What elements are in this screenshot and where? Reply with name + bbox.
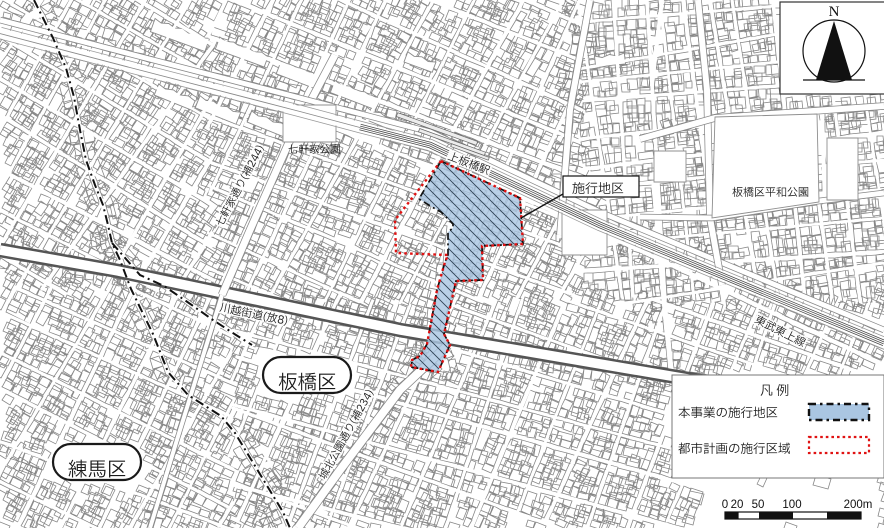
svg-text:N: N	[829, 4, 840, 20]
svg-text:100: 100	[782, 499, 801, 511]
svg-text:0: 0	[722, 499, 728, 511]
svg-text:20: 20	[731, 499, 744, 511]
svg-text:200m: 200m	[844, 499, 873, 511]
svg-text:50: 50	[752, 499, 765, 511]
